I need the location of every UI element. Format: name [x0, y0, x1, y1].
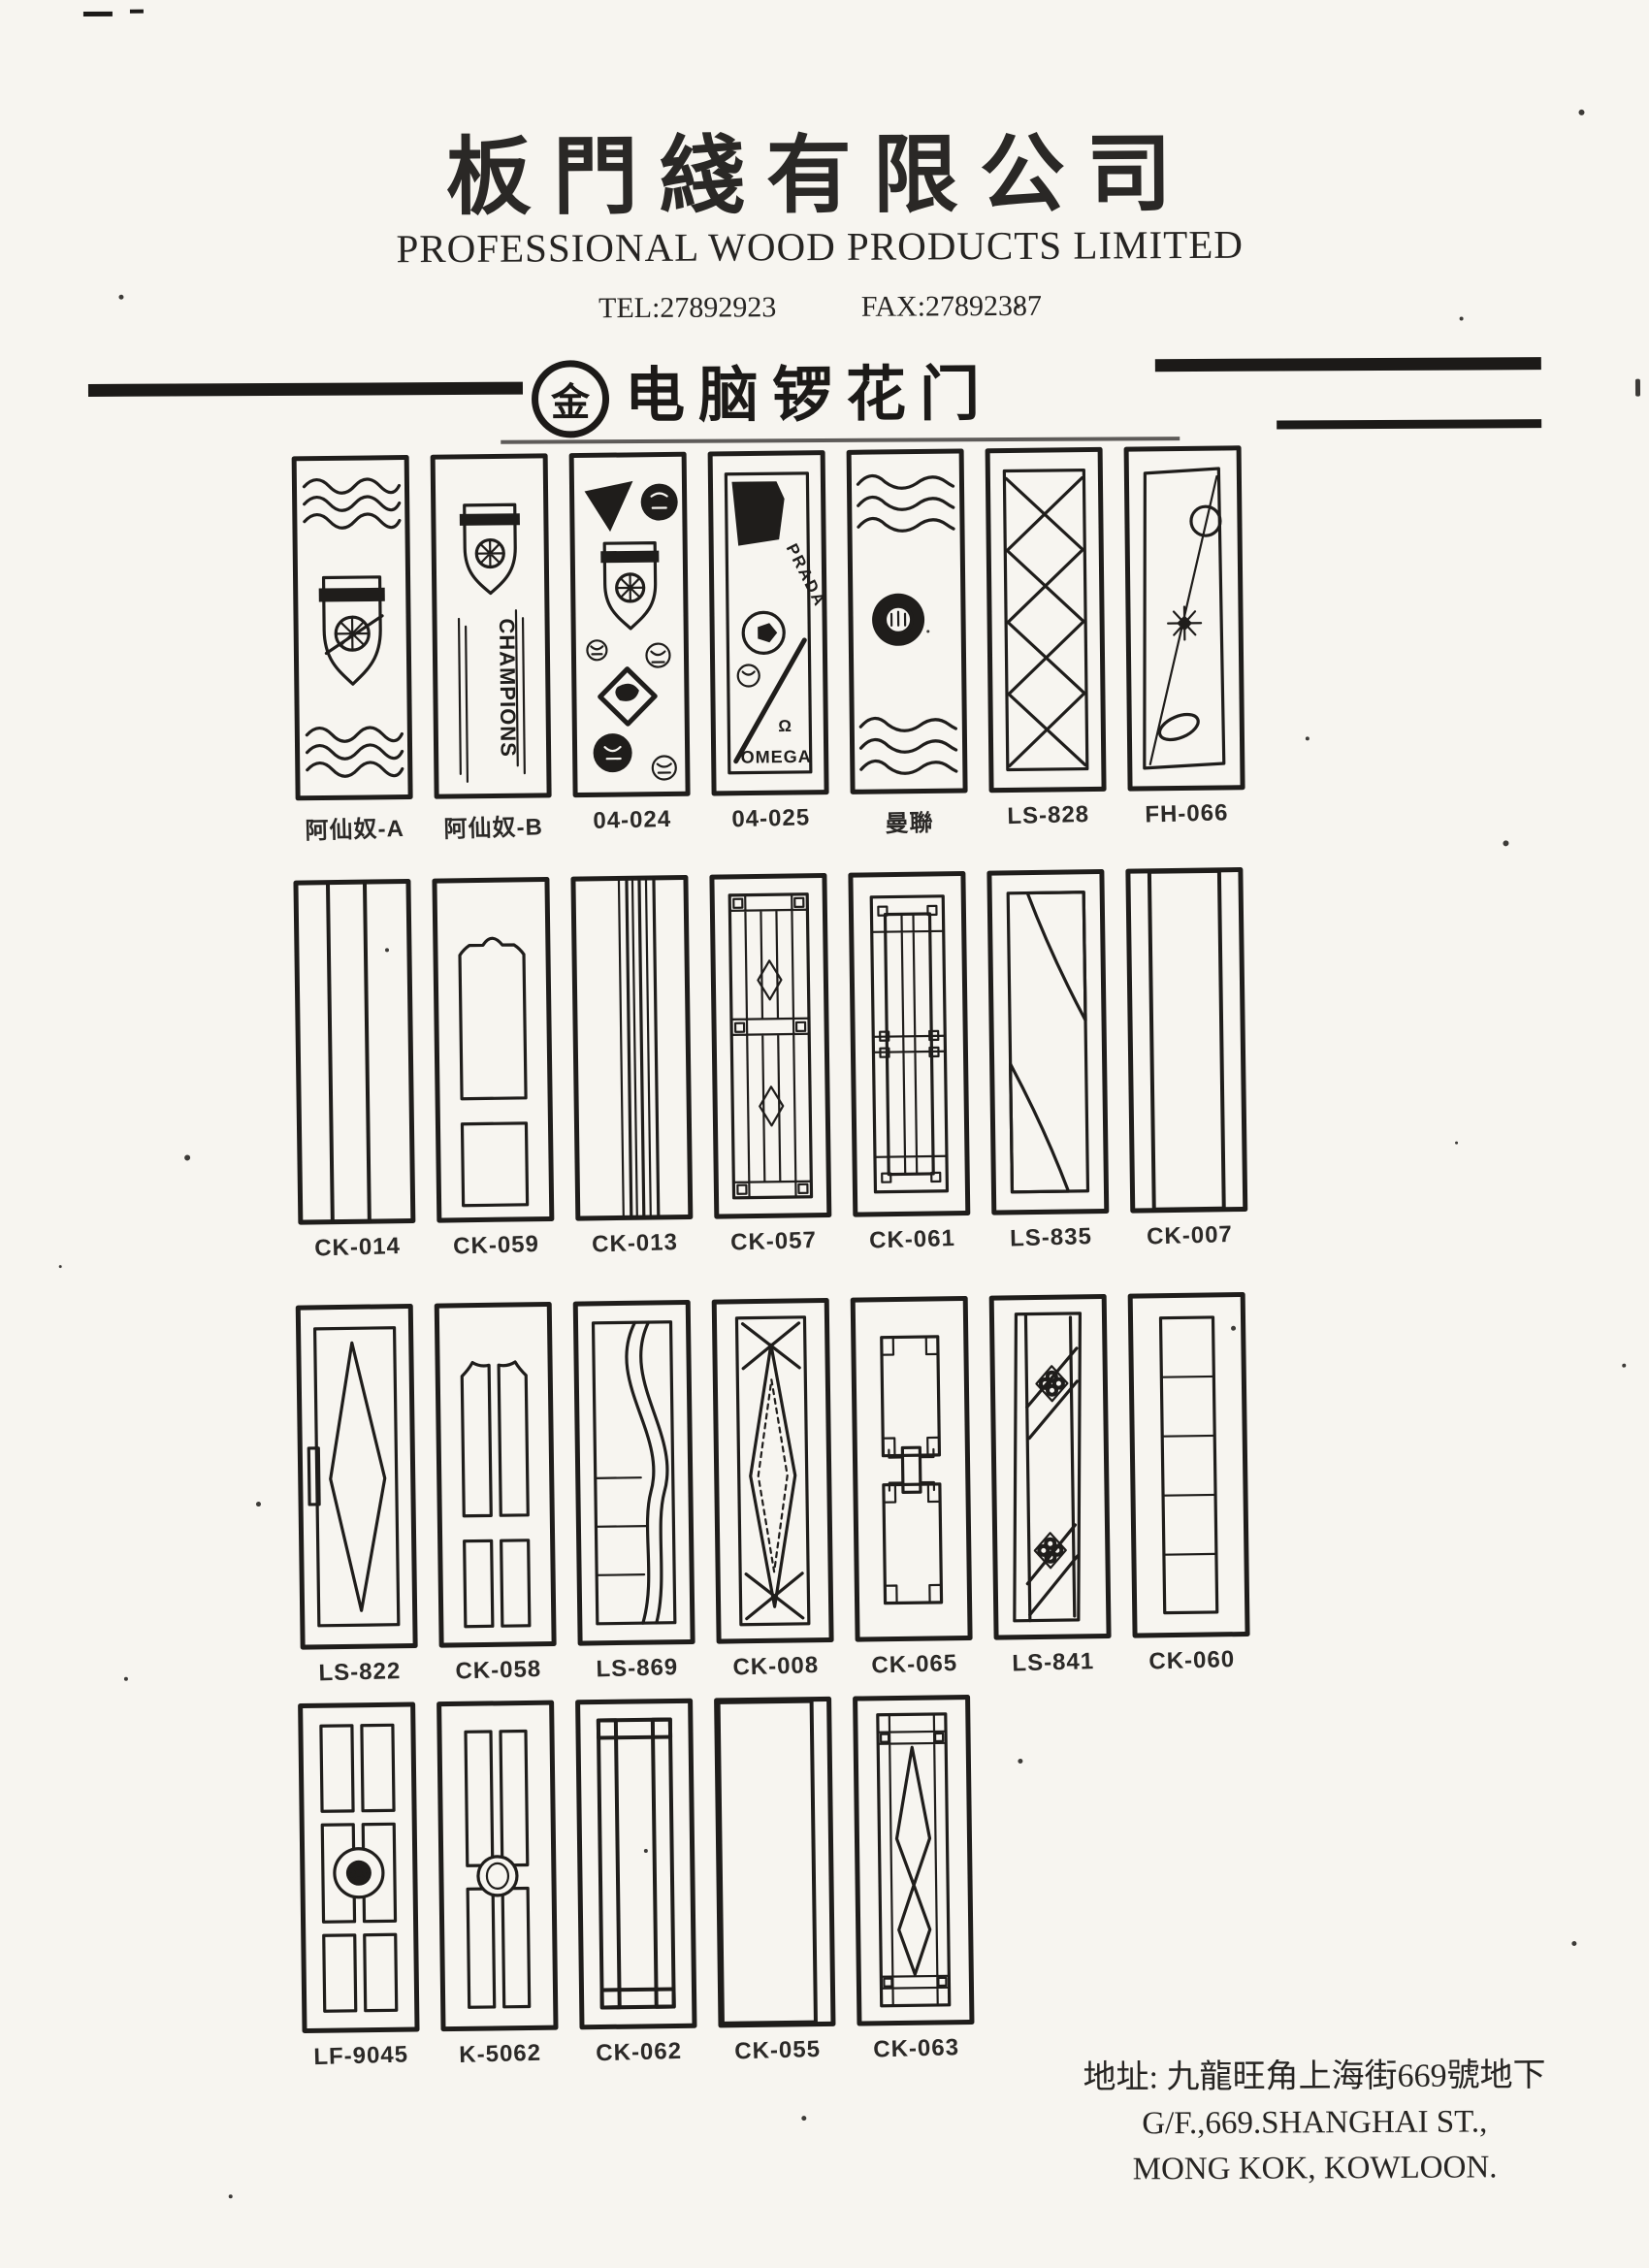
- door-label: CK-065: [871, 1650, 957, 1679]
- door-thumbnail-arsenal-a: [289, 452, 415, 802]
- banner-rule-right-lower: [1277, 419, 1541, 429]
- gold-badge: 金: [532, 360, 609, 437]
- door-label: CK-061: [868, 1225, 954, 1254]
- door-label: 04-025: [731, 804, 810, 833]
- door-label: CK-055: [734, 2036, 821, 2065]
- door-thumbnail-ck-063: [851, 1692, 978, 2028]
- scan-noise: [0, 0, 1643, 4]
- catalog-row-2: CK-014 CK-059 CK-013: [291, 864, 1250, 1262]
- door-label: CK-013: [591, 1229, 677, 1258]
- door-label: LF-9045: [313, 2041, 408, 2071]
- champions-text: CHAMPIONS: [495, 618, 521, 758]
- door-label: LS-828: [1007, 801, 1089, 830]
- tel-number: TEL:27892923: [598, 291, 776, 324]
- door-item: CK-059: [430, 874, 558, 1260]
- door-item: CK-061: [846, 868, 974, 1254]
- address-english-line2: MONG KOK, KOWLOON.: [1014, 2145, 1615, 2193]
- door-thumbnail-k-5062: [435, 1698, 562, 2034]
- door-thumbnail-ck-062: [573, 1696, 700, 2032]
- door-thumbnail-04-025: PRADA Ω OMEGA: [705, 448, 831, 798]
- door-thumbnail-ck-013: [568, 872, 695, 1223]
- door-thumbnail-ls-841: [986, 1291, 1114, 1642]
- door-label: CK-057: [729, 1227, 816, 1256]
- door-item: CK-007: [1123, 864, 1251, 1250]
- door-thumbnail-arsenal-b: CHAMPIONS: [428, 451, 554, 801]
- door-label: CK-014: [313, 1233, 400, 1262]
- door-label: LS-835: [1009, 1223, 1091, 1252]
- door-item: LF-9045: [296, 1700, 423, 2071]
- door-item: CK-014: [291, 876, 419, 1262]
- door-thumbnail-ck-058: [432, 1299, 559, 1650]
- door-thumbnail-ck-060: [1125, 1289, 1252, 1640]
- door-thumbnail-lf-9045: [296, 1700, 423, 2036]
- door-thumbnail-ck-065: [848, 1293, 975, 1644]
- door-thumbnail-club-emblem: [844, 446, 970, 796]
- door-item: CK-065: [848, 1293, 976, 1679]
- door-item: CK-013: [568, 872, 696, 1258]
- door-thumbnail-ck-008: [709, 1295, 836, 1646]
- door-thumbnail-ck-014: [291, 876, 418, 1227]
- company-name-en: PROFESSIONAL WOOD PRODUCTS LIMITED: [0, 219, 1644, 275]
- door-thumbnail-ck-059: [430, 874, 557, 1225]
- door-label: CK-058: [455, 1656, 541, 1685]
- door-item: 曼聯: [844, 446, 971, 838]
- door-label: LS-822: [318, 1658, 401, 1687]
- door-item: LS-828: [983, 444, 1110, 836]
- door-label: 阿仙奴-B: [443, 807, 543, 844]
- scan-content: 板門綫有限公司 PROFESSIONAL WOOD PRODUCTS LIMIT…: [0, 0, 1649, 2268]
- door-thumbnail-ck-055: [712, 1694, 839, 2030]
- contact-line: TEL:27892923 FAX:27892387: [0, 287, 1645, 329]
- banner-rule-right: [1155, 357, 1541, 372]
- door-label: 阿仙奴-A: [305, 809, 404, 846]
- door-item: 阿仙奴-A: [289, 452, 416, 844]
- address-block: 地址: 九龍旺角上海街669號地下 G/F.,669.SHANGHAI ST.,…: [1014, 2053, 1616, 2193]
- door-label: CK-008: [732, 1652, 819, 1681]
- banner-rule-left: [88, 382, 523, 397]
- door-item: CK-063: [851, 1692, 978, 2063]
- omega-symbol: Ω: [778, 717, 792, 735]
- banner-rule-bottom: [501, 437, 1180, 444]
- door-label: CK-060: [1148, 1646, 1235, 1675]
- door-label: CK-059: [452, 1231, 538, 1260]
- door-item: LS-835: [985, 866, 1113, 1252]
- door-thumbnail-ls-822: [293, 1301, 420, 1652]
- door-item: CK-057: [707, 870, 835, 1256]
- door-thumbnail-ck-007: [1123, 864, 1250, 1215]
- door-item: PRADA Ω OMEGA 04-025: [705, 448, 832, 840]
- address-english-line1: G/F.,669.SHANGHAI ST.,: [1014, 2099, 1615, 2148]
- door-item: CK-062: [573, 1696, 700, 2067]
- address-chinese: 地址: 九龍旺角上海街669號地下: [1014, 2053, 1615, 2103]
- door-thumbnail-fh-066: [1121, 443, 1247, 794]
- door-item: LS-841: [986, 1291, 1115, 1677]
- door-label: K-5062: [459, 2040, 541, 2069]
- omega-text: OMEGA: [741, 747, 812, 767]
- gold-badge-character: 金: [551, 371, 590, 427]
- door-label: CK-007: [1146, 1221, 1232, 1250]
- company-name-zh: 板門綫有限公司: [0, 103, 1644, 235]
- door-thumbnail-ls-869: [570, 1297, 697, 1648]
- door-item: CK-055: [712, 1694, 839, 2065]
- door-label: 曼聯: [885, 803, 934, 838]
- scanned-catalog-page: 板門綫有限公司 PROFESSIONAL WOOD PRODUCTS LIMIT…: [0, 0, 1649, 2268]
- door-item: CK-058: [432, 1299, 560, 1685]
- door-thumbnail-ls-828: [983, 444, 1109, 794]
- door-item: LS-822: [293, 1301, 421, 1687]
- door-item: LS-869: [570, 1297, 698, 1683]
- door-label: CK-062: [596, 2038, 682, 2067]
- door-thumbnail-ls-835: [985, 866, 1112, 1217]
- door-item: CHAMPIONS 阿仙奴-B: [428, 451, 555, 843]
- catalog-row-3: LS-822 CK-058 LS-869: [293, 1289, 1252, 1687]
- door-label: CK-063: [873, 2034, 959, 2063]
- door-thumbnail-04-024: [566, 449, 693, 799]
- fax-number: FAX:27892387: [861, 290, 1042, 323]
- door-label: FH-066: [1145, 799, 1229, 828]
- door-label: LS-869: [596, 1654, 678, 1683]
- door-label: LS-841: [1012, 1648, 1094, 1677]
- door-item: CK-008: [709, 1295, 837, 1681]
- catalog-row-4: LF-9045 K-5062 CK-062: [296, 1692, 978, 2070]
- door-thumbnail-ck-057: [707, 870, 834, 1221]
- catalog-row-1: 阿仙奴-A CHAMPIONS 阿仙奴-B: [289, 443, 1248, 845]
- banner-title: 电脑锣花门: [625, 354, 993, 437]
- door-item: K-5062: [435, 1698, 562, 2069]
- door-item: CK-060: [1125, 1289, 1253, 1675]
- door-label: 04-024: [593, 806, 671, 835]
- door-item: FH-066: [1121, 443, 1248, 835]
- door-thumbnail-ck-061: [846, 868, 973, 1219]
- door-item: 04-024: [566, 449, 694, 841]
